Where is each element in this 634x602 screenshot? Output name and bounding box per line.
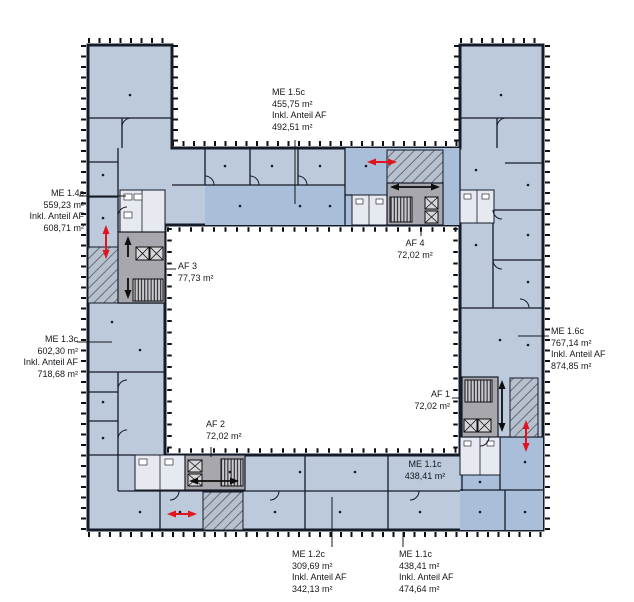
unit-id: AF 2 bbox=[206, 419, 242, 431]
unit-area: 77,73 m² bbox=[178, 273, 214, 285]
core-af2 bbox=[185, 455, 245, 490]
unit-id: ME 1.1c bbox=[399, 549, 454, 561]
unit-id: ME 1.3c bbox=[2, 334, 78, 346]
black-direction-arrows bbox=[125, 184, 506, 485]
unit-id: AF 4 bbox=[391, 238, 439, 250]
label-me-1-3c: ME 1.3c 602,30 m² Inkl. Anteil AF 718,68… bbox=[2, 334, 78, 380]
unit-incl-area: 474,64 m² bbox=[399, 584, 454, 596]
unit-area: 72,02 m² bbox=[206, 431, 242, 443]
label-af-2: AF 2 72,02 m² bbox=[206, 419, 242, 442]
unit-incl: Inkl. Anteil AF bbox=[6, 211, 84, 223]
unit-id: ME 1.5c bbox=[272, 87, 327, 99]
unit-id: AF 3 bbox=[178, 261, 214, 273]
unit-incl: Inkl. Anteil AF bbox=[399, 572, 454, 584]
label-me-1-5c: ME 1.5c 455,75 m² Inkl. Anteil AF 492,51… bbox=[272, 87, 327, 133]
label-me-1-6c: ME 1.6c 767,14 m² Inkl. Anteil AF 874,85… bbox=[551, 326, 606, 372]
unit-id: ME 1.2c bbox=[292, 549, 347, 561]
unit-area: 559,23 m² bbox=[6, 200, 84, 212]
unit-incl-area: 492,51 m² bbox=[272, 122, 327, 134]
label-me-1-4c: ME 1.4c 559,23 m² Inkl. Anteil AF 608,71… bbox=[6, 188, 84, 234]
unit-incl-area: 608,71 m² bbox=[6, 223, 84, 235]
unit-area: 438,41 m² bbox=[388, 471, 462, 483]
core-af4 bbox=[387, 183, 443, 225]
unit-area: 602,30 m² bbox=[2, 346, 78, 358]
floor-plan-page: ME 1.5c 455,75 m² Inkl. Anteil AF 492,51… bbox=[0, 0, 634, 602]
unit-incl: Inkl. Anteil AF bbox=[2, 357, 78, 369]
label-me-1-1c-room: ME 1.1c 438,41 m² bbox=[388, 459, 462, 482]
unit-id: ME 1.1c bbox=[388, 459, 462, 471]
unit-id: ME 1.4c bbox=[6, 188, 84, 200]
unit-incl: Inkl. Anteil AF bbox=[272, 110, 327, 122]
stair-icon bbox=[465, 380, 492, 402]
core-af1 bbox=[462, 377, 498, 437]
stair-icon bbox=[133, 279, 163, 301]
unit-area: 455,75 m² bbox=[272, 99, 327, 111]
core-af3 bbox=[118, 232, 165, 303]
unit-incl: Inkl. Anteil AF bbox=[551, 349, 606, 361]
label-me-1-1c: ME 1.1c 438,41 m² Inkl. Anteil AF 474,64… bbox=[399, 549, 454, 595]
unit-area: 438,41 m² bbox=[399, 561, 454, 573]
unit-area: 309,69 m² bbox=[292, 561, 347, 573]
label-af-1: AF 1 72,02 m² bbox=[398, 389, 450, 412]
wc-blocks bbox=[120, 190, 500, 490]
stair-icon bbox=[390, 197, 412, 222]
label-af-4: AF 4 72,02 m² bbox=[391, 238, 439, 261]
unit-incl-area: 718,68 m² bbox=[2, 369, 78, 381]
unit-area: 72,02 m² bbox=[398, 401, 450, 413]
unit-area: 767,14 m² bbox=[551, 338, 606, 350]
unit-id: ME 1.6c bbox=[551, 326, 606, 338]
unit-id: AF 1 bbox=[398, 389, 450, 401]
unit-incl-area: 874,85 m² bbox=[551, 361, 606, 373]
label-af-3: AF 3 77,73 m² bbox=[178, 261, 214, 284]
label-me-1-2c: ME 1.2c 309,69 m² Inkl. Anteil AF 342,13… bbox=[292, 549, 347, 595]
unit-incl: Inkl. Anteil AF bbox=[292, 572, 347, 584]
unit-area: 72,02 m² bbox=[391, 250, 439, 262]
unit-incl-area: 342,13 m² bbox=[292, 584, 347, 596]
